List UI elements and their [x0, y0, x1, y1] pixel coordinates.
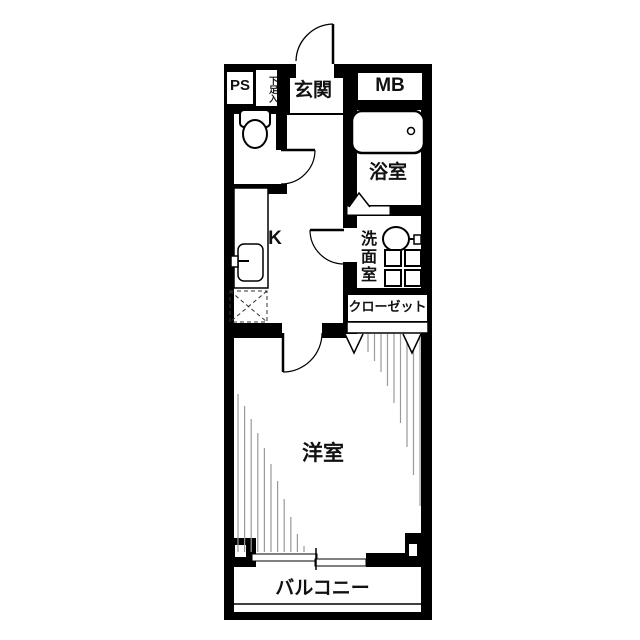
bathroom-label: 浴室	[352, 163, 424, 184]
fridge-space-icon	[230, 291, 267, 322]
wall-left	[224, 64, 234, 620]
closet-label: クローゼット	[347, 300, 428, 314]
entrance-label: 玄関	[288, 81, 338, 102]
wall-room-top-right	[322, 323, 347, 338]
balcony-sliding-window	[252, 548, 366, 570]
closet-track	[347, 322, 428, 333]
pillar-notch-right	[409, 544, 417, 556]
wall-bottom-bar	[224, 612, 432, 620]
ps-label: PS	[226, 78, 254, 95]
closet-hatch-lines	[368, 334, 420, 506]
toilet-bowl	[243, 120, 267, 148]
entrance-door-swing-arc	[296, 24, 333, 61]
meter-box-label: MB	[357, 76, 423, 97]
sliding-window-panel-left	[252, 554, 317, 561]
bathtub-drain	[408, 128, 415, 135]
room-door	[283, 333, 322, 372]
window-hatch-lines	[238, 394, 304, 552]
sliding-window-panel-right	[315, 559, 366, 566]
room-door-swing-arc	[283, 333, 322, 372]
washroom-door-swing-arc	[310, 230, 344, 264]
bath-door-track	[347, 206, 390, 215]
washbasin-tap	[414, 235, 421, 244]
kitchen-label: K	[265, 229, 285, 250]
balcony-label: バルコニー	[250, 579, 395, 600]
closet-bifold-door-icon	[345, 334, 363, 353]
washbasin	[383, 227, 409, 251]
wall-room-top-left	[224, 323, 282, 338]
closet-bifold-door-icon	[403, 334, 421, 353]
wall-toilet-right-upper	[276, 108, 287, 150]
toilet-door-swing-arc	[281, 150, 315, 184]
washer-pan-icon	[385, 250, 421, 286]
washroom-label: 洗面室	[353, 225, 375, 289]
shoe-cabinet-label: 下足入	[256, 72, 277, 106]
western-room-label: 洋室	[281, 442, 365, 465]
floor-plan: PS 下足入 玄関 MB 浴室 洗面室 K クローゼット 洋室 バルコニー	[0, 0, 640, 640]
wall-window-right-segment	[366, 553, 405, 567]
kitchen-sink	[238, 244, 263, 281]
kitchen	[230, 188, 268, 322]
kitchen-tap	[231, 256, 238, 267]
